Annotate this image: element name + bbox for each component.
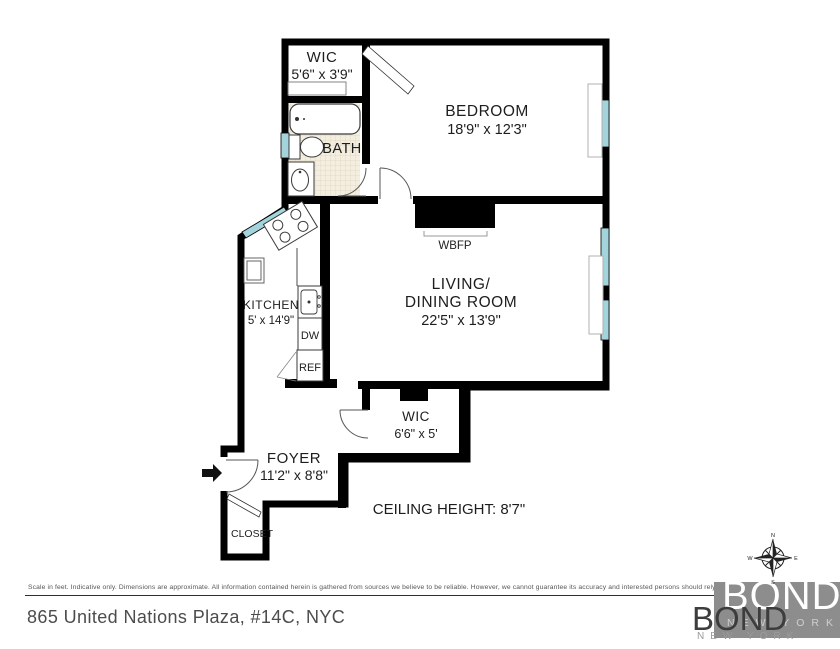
bath-window-icon (281, 133, 289, 158)
bath-label: BATH (322, 141, 362, 157)
wic-top-label: WIC (307, 49, 338, 66)
compass-n-label: N (771, 533, 775, 539)
ceiling-height-note: CEILING HEIGHT: 8'7" (373, 501, 525, 518)
kitchen-dims: 5' x 14'9" (248, 315, 294, 327)
living-dims: 22'5" x 13'9" (421, 313, 501, 329)
wbfp-label: WBFP (438, 240, 472, 252)
wic-top-dims: 5'6" x 3'9" (291, 66, 352, 82)
closet-label: CLOSET (231, 528, 274, 540)
living-label-2: DINING ROOM (405, 294, 517, 311)
compass-e-label: E (794, 556, 798, 562)
living-label-1: LIVING/ (432, 276, 491, 293)
bathtub-icon (290, 104, 360, 134)
bedroom-dims: 18'9" x 12'3" (447, 122, 527, 138)
foyer-dims: 11'2" x 8'8" (260, 467, 328, 483)
compass-w-label: W (747, 556, 753, 562)
toilet-tank-icon (289, 135, 300, 159)
bedroom-label: BEDROOM (445, 103, 529, 120)
floor-plan: WIC 5'6" x 3'9" BATH BEDROOM 18'9" x 12'… (0, 0, 840, 649)
floorplan-page: Scale in feet. Indicative only. Dimensio… (0, 0, 840, 649)
refrigerator-label: REF (299, 362, 321, 374)
dishwasher-label: DW (301, 330, 320, 342)
living-sill (589, 256, 603, 334)
foyer-label: FOYER (267, 450, 321, 467)
compass-rose-icon: N E S W (747, 533, 798, 586)
bedroom-sill (588, 84, 602, 157)
wic-lower-dims: 6'6" x 5' (394, 427, 437, 441)
wic-lower-label: WIC (402, 409, 430, 424)
compass-s-label: S (771, 580, 775, 586)
toilet-bowl-icon (301, 137, 324, 157)
kitchen-label: KITCHEN (243, 298, 299, 312)
